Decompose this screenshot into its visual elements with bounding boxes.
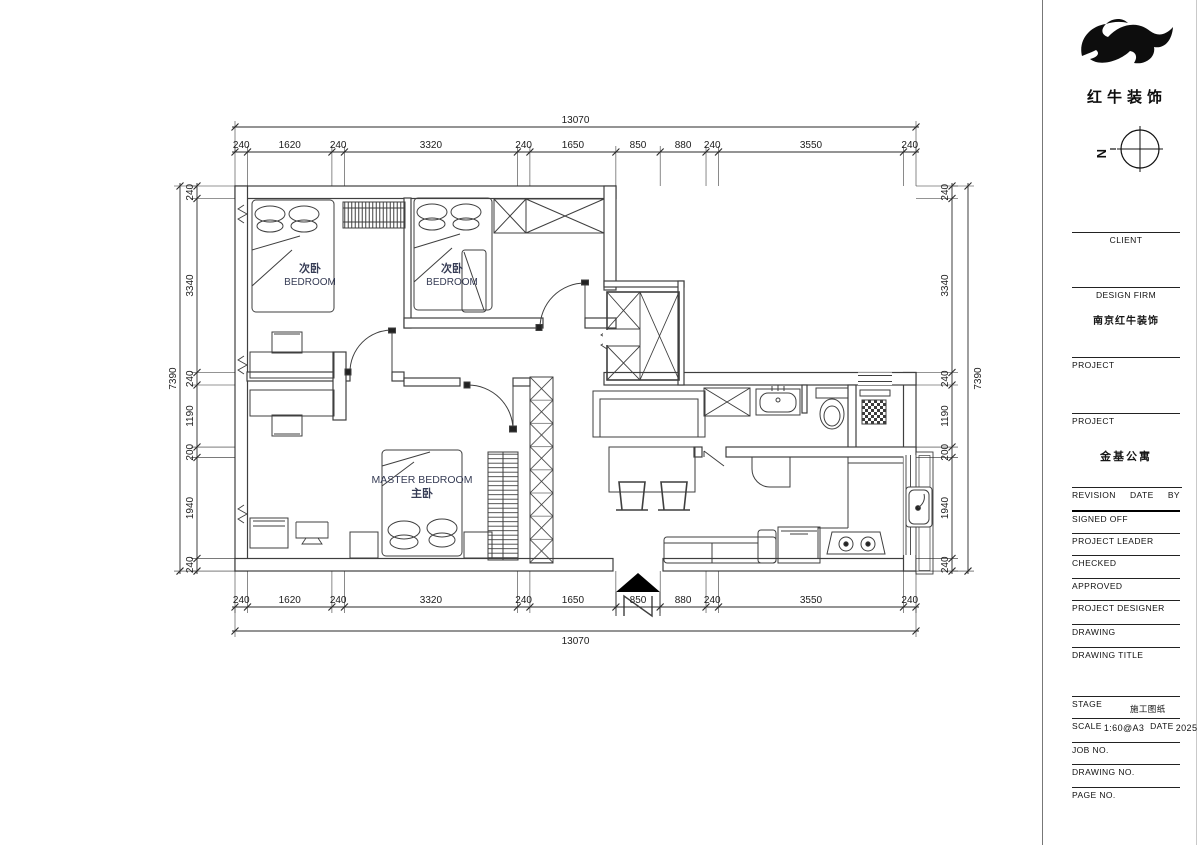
- tv-unit-master: [250, 518, 328, 548]
- dim-label: 200: [940, 443, 951, 460]
- compass-n-label: N: [1094, 149, 1109, 158]
- titleblock-project-leader: PROJECT LEADER: [1072, 533, 1180, 546]
- dim-label: 240: [704, 140, 721, 151]
- scale-value: 1:60@A3: [1104, 723, 1144, 733]
- dim-label: 13070: [562, 115, 590, 126]
- sheet-edge: [1196, 0, 1197, 845]
- wall-desk-pier: [333, 352, 346, 420]
- dim-label: 1650: [562, 595, 585, 606]
- dim-label: 3550: [800, 595, 823, 606]
- titleblock-job-no: JOB NO.: [1072, 742, 1180, 755]
- wall-bed1-bottom-b: [392, 372, 404, 381]
- titleblock-client: CLIENT: [1072, 232, 1180, 245]
- brand-name: 红牛装饰: [1064, 86, 1190, 107]
- dim-label: 240: [233, 140, 250, 151]
- washbasin: [756, 385, 800, 415]
- wall-bottom-right: [663, 559, 916, 572]
- titleblock-project-2: PROJECT: [1072, 413, 1180, 426]
- titleblock-checked: CHECKED: [1072, 555, 1180, 568]
- dim-label: 7390: [973, 367, 984, 390]
- dim-label: 240: [940, 183, 951, 200]
- dim-label: 3550: [800, 140, 823, 151]
- master-label-en: MASTER BEDROOM: [372, 474, 473, 486]
- bedroom2-label-en: BEDROOM: [426, 277, 478, 288]
- kitchen-counter: [752, 457, 904, 559]
- door-bathroom: [704, 451, 724, 466]
- dim-label: 880: [675, 595, 692, 606]
- bed-bedroom1: [252, 200, 334, 312]
- titleblock-design-firm: DESIGN FIRM: [1072, 287, 1180, 300]
- stage-value: 施工图纸: [1130, 703, 1166, 715]
- bed-master: [382, 450, 462, 556]
- dim-label: 240: [515, 595, 532, 606]
- door-master: [464, 382, 517, 432]
- wall-bath-stub: [802, 385, 807, 413]
- double-desk: [250, 332, 334, 436]
- tall-wardrobe-column: [530, 377, 553, 563]
- titleblock-drawing: DRAWING: [1072, 624, 1180, 637]
- wall-master-top-b: [513, 378, 530, 386]
- bath-cabinet: [704, 388, 750, 416]
- titleblock-page-no: PAGE NO.: [1072, 787, 1180, 800]
- brand-logo-bull: [1076, 18, 1176, 85]
- door-bedroom1: [345, 328, 396, 375]
- dim-label: 3340: [185, 274, 196, 297]
- titleblock-revision-row: REVISION DATE BY: [1072, 487, 1182, 500]
- bedroom1-label-zh: 次卧: [299, 261, 321, 275]
- wall-entry-step-top: [604, 281, 684, 287]
- project-value: 金基公寓: [1072, 448, 1180, 464]
- titleblock-drawing-title: DRAWING TITLE: [1072, 647, 1180, 660]
- dim-label: 13070: [562, 636, 590, 647]
- dim-label: 240: [330, 140, 347, 151]
- wall-bed2-right: [604, 186, 616, 290]
- hanger-rack-master: [488, 452, 518, 560]
- date-value: 2025: [1176, 723, 1198, 733]
- bedroom2-label-zh: 次卧: [441, 261, 463, 275]
- dim-label: 1650: [562, 140, 585, 151]
- nightstand-master-left: [350, 532, 378, 558]
- titleblock-project-designer: PROJECT DESIGNER: [1072, 600, 1180, 613]
- dim-label: 240: [233, 595, 250, 606]
- titleblock-scale: SCALE1:60@A3 DATE2025: [1072, 718, 1180, 731]
- dim-label: 3320: [420, 140, 443, 151]
- settee: [593, 391, 705, 437]
- kitchen-sink: [906, 487, 932, 527]
- titleblock-signed-off: SIGNED OFF: [1072, 510, 1180, 524]
- master-label-zh: 主卧: [411, 486, 433, 500]
- drawing-sheet: 次卧 BEDROOM 次卧 BEDROOM MASTER BEDROOM 主卧 …: [0, 0, 1200, 845]
- dim-label: 3320: [420, 595, 443, 606]
- dining-chairs: [616, 482, 690, 510]
- dim-label: 240: [901, 595, 918, 606]
- stove: [827, 532, 885, 554]
- dim-label: 1620: [279, 140, 302, 151]
- wall-200-main: [726, 447, 916, 457]
- wall-bottom-left: [235, 559, 613, 572]
- dim-label: 240: [185, 556, 196, 573]
- radiator-bedroom1: [343, 202, 405, 228]
- dim-label: 880: [675, 140, 692, 151]
- dim-label: 1940: [185, 496, 196, 519]
- floor-plan: 次卧 BEDROOM 次卧 BEDROOM MASTER BEDROOM 主卧 …: [0, 0, 1200, 845]
- dim-label: 850: [630, 595, 647, 606]
- dim-label: 240: [330, 595, 347, 606]
- north-compass: N: [1092, 124, 1176, 179]
- titleblock-project-1: PROJECT: [1072, 357, 1180, 370]
- toilet: [816, 388, 848, 429]
- wall-master-top-a: [404, 378, 460, 386]
- fridge-unit: [778, 527, 820, 563]
- titleblock-border: [1042, 0, 1043, 845]
- wardrobe-bedroom2: [494, 199, 604, 233]
- titleblock-approved: APPROVED: [1072, 578, 1180, 591]
- dim-label: 240: [940, 556, 951, 573]
- dim-label: 240: [185, 370, 196, 387]
- washing-machine: [860, 390, 890, 424]
- walls: [235, 186, 916, 571]
- dim-label: 200: [185, 443, 196, 460]
- dim-label: 240: [515, 140, 532, 151]
- dining-table: [609, 447, 695, 492]
- wall-bed2-bottom-b: [585, 318, 616, 328]
- titleblock-drawing-no: DRAWING NO.: [1072, 764, 1180, 777]
- wall-bed2-bottom-a: [404, 318, 543, 328]
- dim-label: 1190: [940, 405, 951, 427]
- wall-balcony: [848, 385, 856, 453]
- door-bedroom2: [536, 280, 589, 331]
- dim-label: 3340: [940, 274, 951, 297]
- titleblock-stage: STAGE 施工图纸: [1072, 696, 1180, 709]
- design-firm-value: 南京红牛装饰: [1072, 312, 1180, 327]
- dim-label: 240: [940, 370, 951, 387]
- bedroom1-label-en: BEDROOM: [284, 277, 336, 288]
- entry-closet: [603, 292, 679, 380]
- dim-label: 1190: [185, 405, 196, 427]
- dim-label: 850: [630, 140, 647, 151]
- dim-label: 7390: [168, 367, 179, 390]
- wall-top: [235, 186, 616, 199]
- dim-label: 240: [704, 595, 721, 606]
- dim-label: 1940: [940, 496, 951, 519]
- bed-bedroom2: [414, 198, 492, 310]
- dim-label: 1620: [279, 595, 302, 606]
